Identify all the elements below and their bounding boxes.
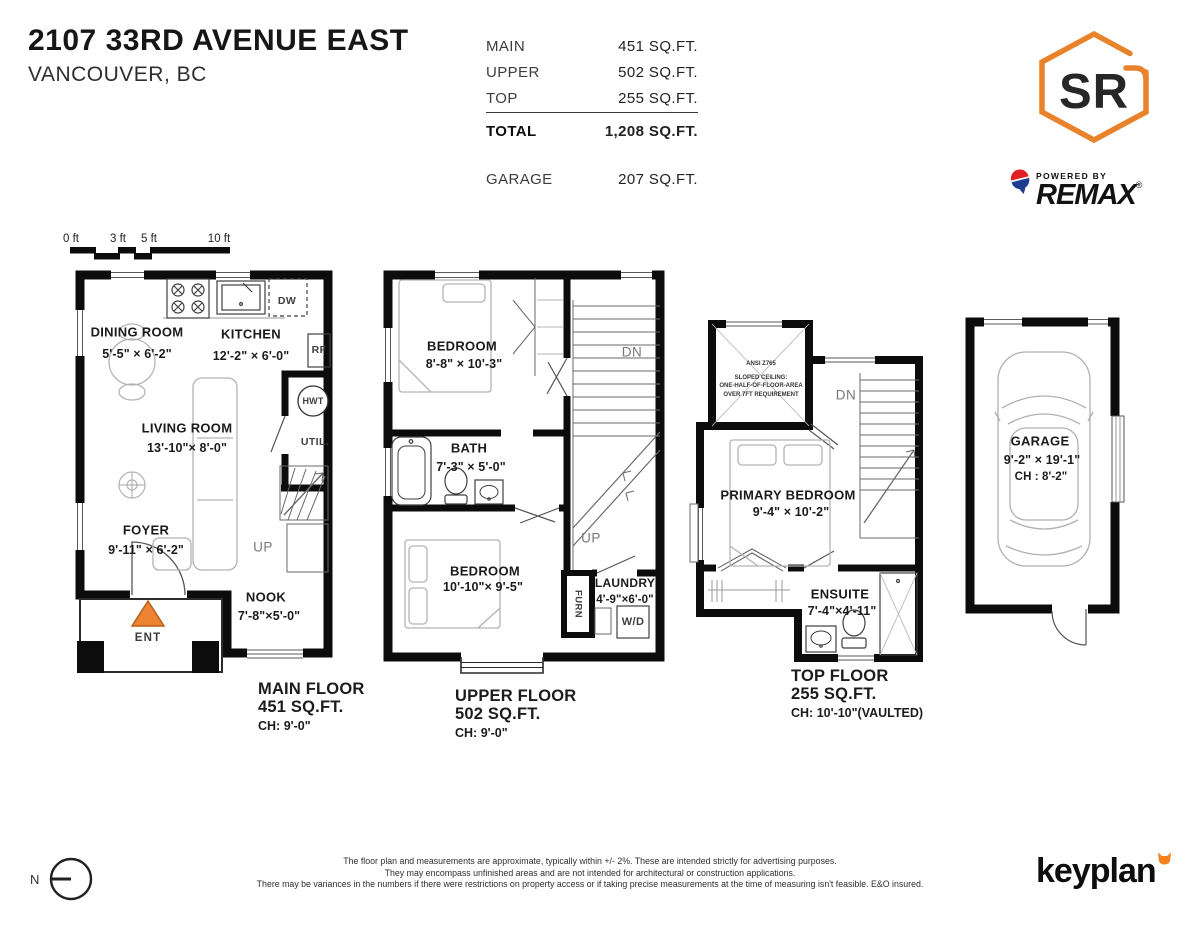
total-label: TOTAL [486,123,537,140]
table-row: MAIN 451 SQ.FT. [486,33,698,59]
property-address: 2107 33RD AVENUE EAST VANCOUVER, BC [28,24,409,87]
fridge-label: RF [312,344,327,356]
room-label: BEDROOM [450,564,520,579]
table-divider [486,112,698,113]
entrance-label: ENT [135,632,162,644]
room-dims: 12'-2" × 6'-0" [213,349,290,363]
scale-label-0ft: 0 ft [63,233,79,245]
table-total-row: TOTAL 1,208 SQ.FT. [486,116,698,146]
room-label: BATH [451,441,487,456]
room-label: DINING ROOM [91,325,184,340]
top-floor-plan: ANSI Z765 SLOPED CEILING: ONE-HALF-OF-FL… [688,318,923,680]
hwt-label: HWT [302,396,323,406]
top-floor-caption: TOP FLOOR 255 SQ.FT. CH: 10'-10"(VAULTED… [791,668,923,720]
porch-pillar [192,641,219,673]
north-label: N [30,872,39,887]
util-label: UTIL. [301,436,329,448]
main-floor-caption: MAIN FLOOR 451 SQ.FT. CH: 9'-0" [258,681,365,733]
ceiling-fixture-icon [119,472,145,498]
area-row-value: 451 SQ.FT. [618,38,698,55]
room-dims: 10'-10"× 9'-5" [443,580,523,594]
ceiling-height: CH : 8'-2" [1015,471,1068,483]
area-row-label: MAIN [486,38,525,55]
room-dims: 7'-8"×5'-0" [238,609,300,623]
garage-door-icon [1112,416,1124,502]
furnace-label: FURN [573,590,584,618]
floor-plan-page: { "header": { "address_line1": "2107 33R… [0,0,1200,927]
area-summary-table: MAIN 451 SQ.FT. UPPER 502 SQ.FT. TOP 255… [486,33,698,192]
address-line2: VANCOUVER, BC [28,63,409,87]
garage-value: 207 SQ.FT. [618,171,698,188]
registered-mark: ® [1136,180,1142,190]
area-row-value: 255 SQ.FT. [618,90,698,107]
window-bump [690,504,698,562]
room-label: LAUNDRY [595,576,655,590]
room-label: ENSUITE [811,587,869,602]
stairs-up-label: UP [253,540,273,555]
room-dims: 9'-11" × 6'-2" [108,543,184,557]
north-compass-icon [48,856,94,902]
room-dims: 4'-9"×6'-0" [596,594,653,606]
address-line1: 2107 33RD AVENUE EAST [28,24,409,58]
area-row-value: 502 SQ.FT. [618,64,698,81]
room-dims: 9'-2" × 19'-1" [1004,453,1081,467]
upper-floor-plan: BEDROOM 8'-8" × 10'-3" BATH 7'-3" × 5'-0… [383,270,665,688]
room-dims: 8'-8" × 10'-3" [426,357,503,371]
area-row-label: TOP [486,90,518,107]
ent-arrow-icon [132,601,164,626]
fox-icon [1157,852,1172,865]
sr-brokerage-logo: SR POWERED BY REMAX® [1030,28,1158,228]
remax-logo: POWERED BY REMAX® [1010,168,1178,210]
room-dims: 5'-5" × 6'-2" [102,347,171,361]
keyplan-logo: keyplan [1036,854,1172,888]
garage-label: GARAGE [486,171,553,188]
sloped-ceiling-note: ANSI Z765 SLOPED CEILING: ONE-HALF-OF-FL… [706,360,816,400]
scale-label-10ft: 10 ft [208,233,230,245]
disclaimer-text: The floor plan and measurements are appr… [240,856,940,891]
table-row: TOP 255 SQ.FT. [486,85,698,111]
sr-monogram: SR [1030,64,1158,120]
room-dims: 13'-10"× 8'-0" [147,441,227,455]
remax-balloon-icon [1010,168,1031,196]
scale-label-5ft: 5 ft [141,233,157,245]
remax-wordmark: REMAX® [1036,181,1141,210]
stairs-up-label: UP [581,531,601,546]
stairs-down-label: DN [836,388,857,403]
scale-bar-icon [65,247,237,261]
room-dims: 7'-4"×4'-11" [808,604,877,618]
keyplan-wordmark: keyplan [1036,854,1156,888]
total-value: 1,208 SQ.FT. [605,123,698,140]
table-garage-row: GARAGE 207 SQ.FT. [486,166,698,192]
room-label: NOOK [246,590,286,605]
porch-pillar [77,641,104,673]
garage-drawing [962,312,1130,660]
room-label: BEDROOM [427,339,497,354]
area-row-label: UPPER [486,64,540,81]
room-label: GARAGE [1011,434,1070,449]
room-label: KITCHEN [221,327,281,342]
garage-plan: GARAGE 9'-2" × 19'-1" CH : 8'-2" [962,312,1130,660]
table-row: UPPER 502 SQ.FT. [486,59,698,85]
room-dims: 7'-3" × 5'-0" [436,460,505,474]
washer-dryer-label: W/D [622,616,645,628]
dishwasher-label: DW [278,295,296,307]
upper-floor-caption: UPPER FLOOR 502 SQ.FT. CH: 9'-0" [455,688,576,740]
main-floor-plan: DINING ROOM 5'-5" × 6'-2" KITCHEN 12'-2"… [75,270,333,682]
room-label: FOYER [123,523,169,538]
scale-label-3ft: 3 ft [110,233,126,245]
room-label: LIVING ROOM [142,421,233,436]
room-label: PRIMARY BEDROOM [720,488,855,503]
north-indicator: N [30,856,94,902]
stairs-down-label: DN [622,345,643,360]
room-dims: 9'-4" × 10'-2" [753,505,830,519]
